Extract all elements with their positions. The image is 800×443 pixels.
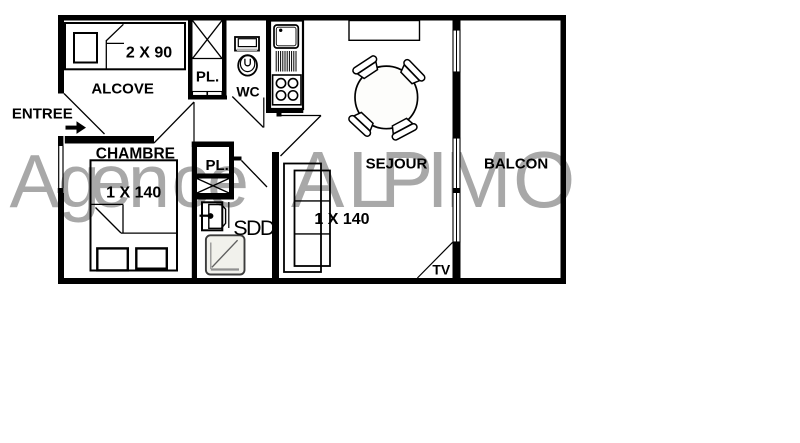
svg-text:WC: WC: [236, 83, 259, 99]
svg-text:2 X 90: 2 X 90: [126, 44, 172, 61]
svg-text:PL.: PL.: [196, 69, 219, 86]
svg-text:SDD: SDD: [233, 216, 275, 240]
svg-text:ENTREE: ENTREE: [12, 106, 73, 123]
svg-text:CHAMBRE: CHAMBRE: [96, 146, 175, 163]
svg-text:SEJOUR: SEJOUR: [366, 156, 428, 173]
svg-text:1 X 140: 1 X 140: [314, 211, 369, 228]
svg-text:TV: TV: [432, 262, 451, 278]
svg-text:1 X 140: 1 X 140: [106, 184, 161, 201]
svg-text:PL.: PL.: [206, 157, 229, 174]
svg-text:ALCOVE: ALCOVE: [91, 80, 154, 97]
svg-text:BALCON: BALCON: [484, 156, 548, 173]
